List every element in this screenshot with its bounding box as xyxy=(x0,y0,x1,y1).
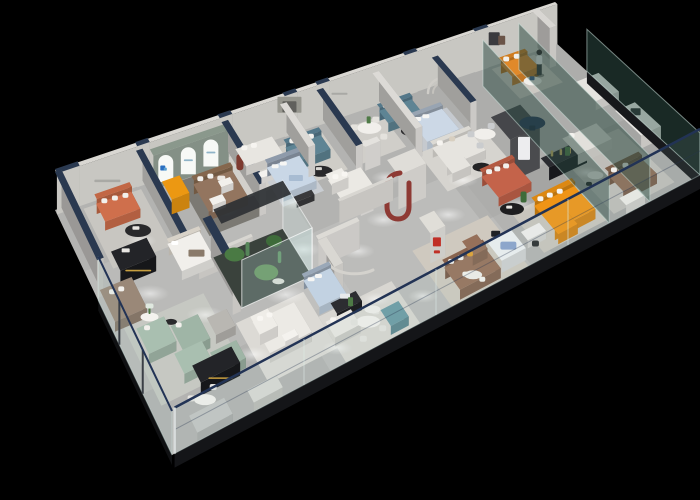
cushion xyxy=(266,312,272,317)
bed-pillow xyxy=(272,164,279,168)
cushion xyxy=(557,189,563,194)
bed-pillow xyxy=(308,277,315,281)
cushion xyxy=(118,286,124,291)
cushion xyxy=(332,174,338,179)
bed-pillow xyxy=(422,114,429,118)
cushion xyxy=(503,56,509,61)
dining-chair xyxy=(477,143,484,149)
feature-door xyxy=(518,137,530,160)
cabinet-decor xyxy=(122,248,130,252)
terrarium-plant xyxy=(225,247,245,261)
dining-chair xyxy=(467,131,474,137)
cushion xyxy=(144,325,150,330)
bed-pillow xyxy=(315,274,322,278)
table-plant xyxy=(367,116,371,123)
dining-table xyxy=(357,122,381,134)
gold-trim xyxy=(125,270,151,272)
signage-marks xyxy=(331,93,347,95)
coffee-table-oval-dark xyxy=(500,203,524,215)
signage-marks xyxy=(184,159,193,161)
dining-chair xyxy=(488,123,495,129)
bed-throw xyxy=(188,250,204,257)
table-decor xyxy=(506,206,512,209)
table-tray xyxy=(132,226,139,230)
cushion xyxy=(207,174,213,179)
cactus xyxy=(246,242,250,256)
table-decor xyxy=(316,167,322,170)
showroom-floorplan-render: 3D isometric cutaway rendering of a furn… xyxy=(0,0,700,500)
cushion xyxy=(486,169,492,174)
cushion xyxy=(437,140,443,145)
cushion xyxy=(449,136,455,141)
cushion xyxy=(101,198,107,203)
flower-bloom xyxy=(146,303,154,308)
wall-art xyxy=(489,32,500,45)
signage-marks xyxy=(94,180,120,183)
wall-art xyxy=(498,36,505,45)
signage-marks xyxy=(206,152,215,154)
bed-pillow xyxy=(171,241,178,245)
partition xyxy=(470,100,476,132)
cushion xyxy=(537,196,543,201)
cushion xyxy=(251,143,257,148)
plant-tall xyxy=(521,191,527,202)
cushion xyxy=(176,322,182,327)
cushion xyxy=(342,171,348,176)
plant-pot xyxy=(348,297,353,306)
wall-cap-navy xyxy=(405,51,418,96)
bed-throw xyxy=(289,175,303,181)
cushion xyxy=(241,145,247,150)
logo-red xyxy=(434,250,440,253)
dining-chair xyxy=(372,117,379,123)
cushion xyxy=(122,193,128,198)
dining-chair xyxy=(380,134,387,140)
cushion xyxy=(112,196,118,201)
dining-table xyxy=(474,129,496,140)
cushion xyxy=(197,176,203,181)
logo-red xyxy=(433,237,441,246)
cushion xyxy=(494,166,500,171)
coffee-table-dark xyxy=(125,224,151,237)
cushion xyxy=(257,316,263,321)
cushion xyxy=(503,163,509,168)
showroom-render-stage: 3D isometric cutaway rendering of a furn… xyxy=(0,0,700,500)
cushion xyxy=(547,193,553,198)
logo-blue xyxy=(164,168,167,171)
bed-pillow xyxy=(280,161,287,165)
partition xyxy=(309,145,316,178)
